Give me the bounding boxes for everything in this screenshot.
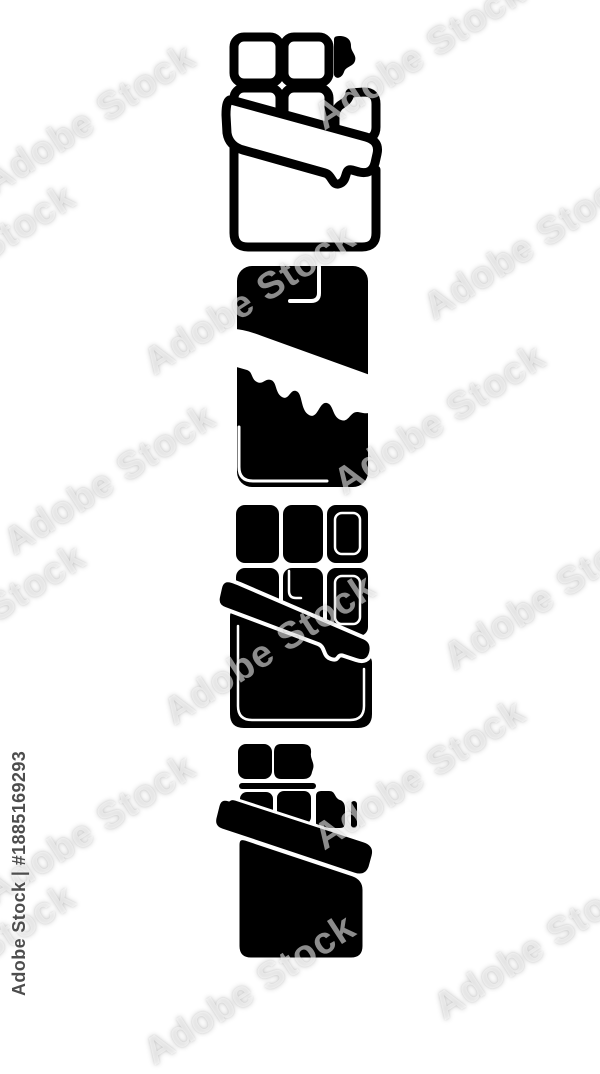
chocolate-square [284,37,329,83]
adobe-stock-watermark-tile: Adobe Stock [0,396,224,565]
stock-image-canvas: Adobe Stock Adobe Stock Adobe Stock Adob… [0,0,600,1000]
bar-edge-sliver [351,801,357,828]
adobe-stock-watermark-tile: Adobe Stock [416,161,600,330]
chocolate-square [234,37,280,83]
chocolate-square [283,505,323,563]
adobe-stock-watermark-tile: Adobe Stock [426,861,600,1030]
bitten-chocolate-square [274,744,313,779]
adobe-stock-watermark-tile: Adobe Stock [0,876,84,1045]
adobe-stock-id-watermark: Adobe Stock | #1885169293 [9,751,30,996]
adobe-stock-watermark-tile: Adobe Stock [0,746,204,915]
chocolate-bar-open-small-solid-icon [214,738,386,964]
chocolate-bar-open-outline-icon [218,30,386,252]
chocolate-square [236,505,279,563]
bite-mark [334,36,355,78]
adobe-stock-watermark-tile: Adobe Stock [0,36,204,205]
adobe-stock-watermark-tile: Adobe Stock [0,176,84,345]
chocolate-bar-open-solid-icon [216,500,386,734]
chocolate-bar-melting-solid-icon [218,258,386,492]
bitten-chocolate-square [316,791,345,828]
adobe-stock-watermark-tile: Adobe Stock [0,536,94,705]
adobe-stock-watermark-tile: Adobe Stock [436,511,600,680]
row-divider-bar [239,783,316,789]
chocolate-square [238,744,272,779]
